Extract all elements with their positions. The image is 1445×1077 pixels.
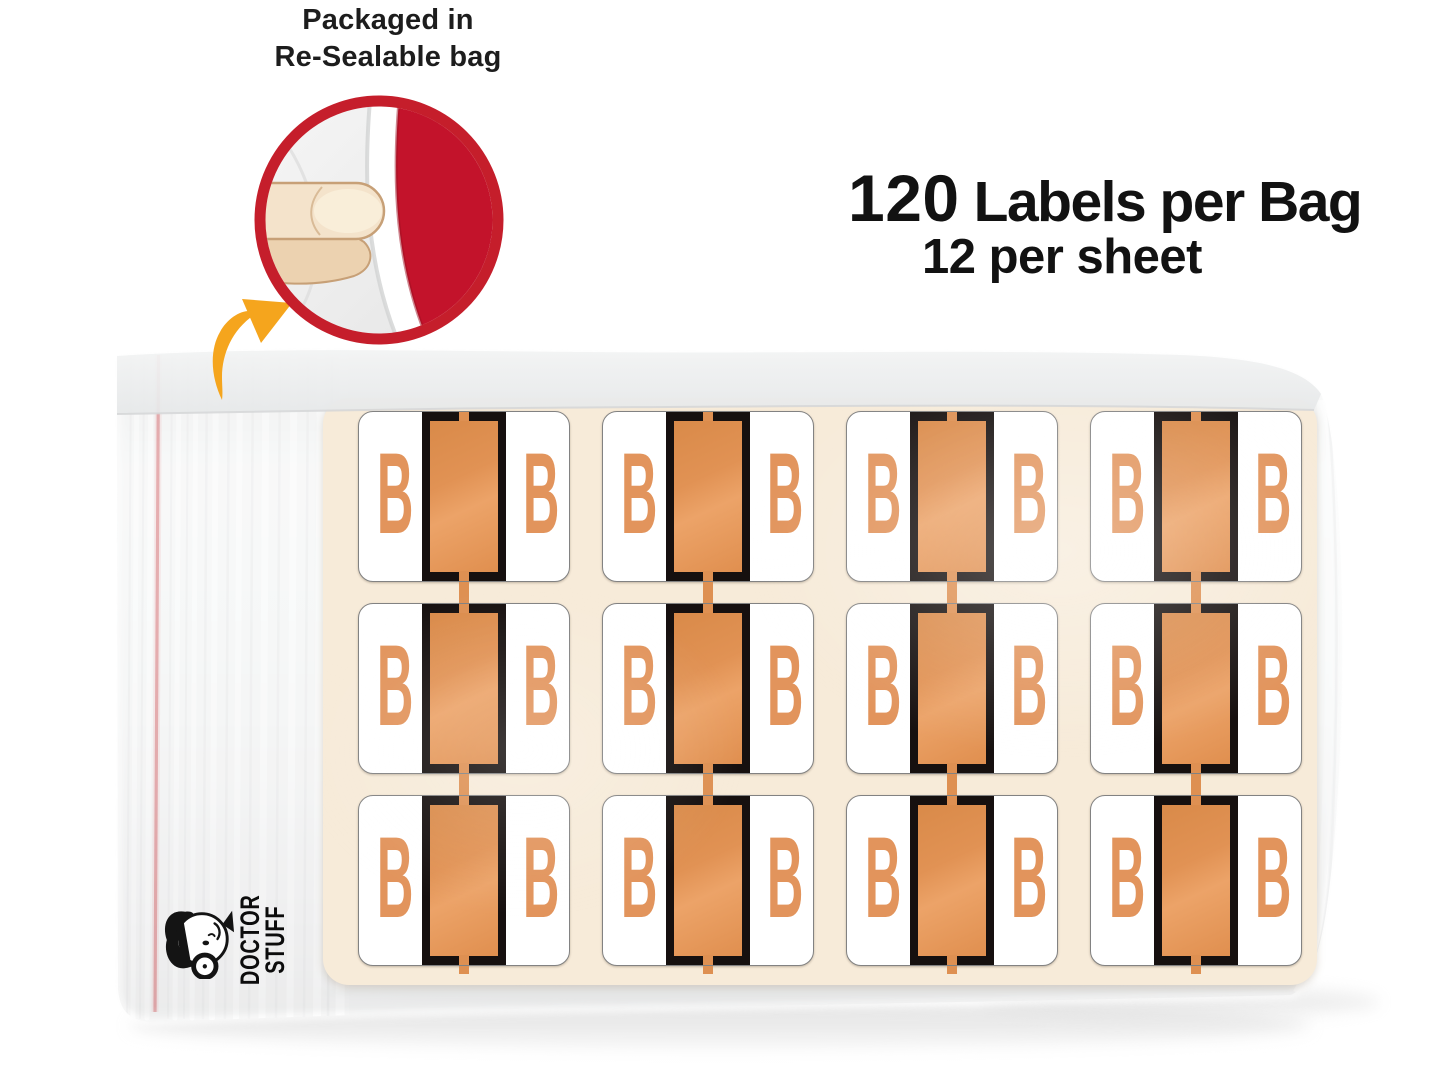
die-cut-tick [947,774,957,795]
bag-zip-red-line [155,355,159,1012]
color-code-label: B B [602,795,814,966]
label-letter-left: B [1109,629,1137,744]
packaged-note-line1: Packaged in [233,2,543,39]
doctor-face-icon [160,901,236,979]
color-code-label: B B [1090,411,1302,582]
label-letter-right: B [1255,821,1283,936]
label-letter-right: B [1011,437,1039,552]
die-cut-tick [703,966,713,974]
label-stripe [910,796,994,965]
die-cut-tick [947,966,957,974]
die-cut-tick [1191,774,1201,795]
label-stripe-core [674,421,742,572]
label-stripe-core [674,805,742,956]
label-stripe [666,604,750,773]
label-letter-right: B [523,821,551,936]
label-letter-left: B [865,437,893,552]
label-letter-right: B [1011,821,1039,936]
color-code-label: B B [1090,603,1302,774]
label-letter-left: B [621,821,649,936]
label-stripe [422,796,506,965]
color-code-label: B B [846,411,1058,582]
logo-text-stuff: STUFF [263,895,288,986]
label-stripe [1154,796,1238,965]
label-stripe-core [674,613,742,764]
label-stripe-core [1162,613,1230,764]
labels-per-bag-text: Labels per Bag [974,169,1362,235]
label-letter-left: B [865,629,893,744]
die-cut-tick [703,582,713,603]
product-image: B B B B B B B B B B B B B [0,0,1445,1077]
label-stripe-core [430,805,498,956]
color-code-label: B B [846,603,1058,774]
die-cut-tick [1191,966,1201,974]
label-stripe [1154,412,1238,581]
color-code-label: B B [358,603,570,774]
label-stripe-core [1162,421,1230,572]
color-code-label: B B [602,411,814,582]
packaged-note: Packaged in Re-Sealable bag [233,2,543,76]
bag-zip-red-line-glow [155,355,159,1012]
label-stripe [422,412,506,581]
label-letter-left: B [377,437,405,552]
resealable-bag-inset-icon [244,85,514,355]
die-cut-tick [459,966,469,974]
sheet-inner-shadow [320,982,1320,1004]
die-cut-tick [459,774,469,795]
label-stripe-core [1162,805,1230,956]
packaged-note-line2: Re-Sealable bag [233,39,543,76]
label-stripe [1154,604,1238,773]
labels-per-bag-number: 120 [848,160,960,236]
label-letter-right: B [523,629,551,744]
label-stripe-core [430,613,498,764]
label-letter-left: B [621,629,649,744]
color-code-label: B B [1090,795,1302,966]
label-stripe [666,796,750,965]
label-stripe [666,412,750,581]
label-letter-left: B [1109,821,1137,936]
label-letter-left: B [1109,437,1137,552]
per-sheet-text: 12 per sheet [922,229,1202,285]
label-letter-left: B [621,437,649,552]
color-code-label: B B [358,795,570,966]
bag-bottom-fade [0,1006,1445,1072]
label-stripe-core [430,421,498,572]
die-cut-tick [947,582,957,603]
label-letter-right: B [523,437,551,552]
label-sheet: B B B B B B B B B B B B B [323,398,1317,985]
color-code-label: B B [602,603,814,774]
label-stripe [910,412,994,581]
label-letter-right: B [1255,437,1283,552]
label-letter-left: B [865,821,893,936]
die-cut-tick [459,582,469,603]
label-stripe [422,604,506,773]
label-letter-right: B [767,437,795,552]
label-letter-right: B [1011,629,1039,744]
label-stripe [910,604,994,773]
label-letter-left: B [377,821,405,936]
label-letter-right: B [1255,629,1283,744]
color-code-label: B B [846,795,1058,966]
label-letter-right: B [767,629,795,744]
labels-per-bag-heading: 120 Labels per Bag [848,160,1361,236]
label-stripe-core [918,613,986,764]
label-stripe-core [918,805,986,956]
doctor-stuff-logo: DOCTOR STUFF [160,882,316,998]
color-code-label: B B [358,411,570,582]
label-stripe-core [918,421,986,572]
label-letter-right: B [767,821,795,936]
die-cut-tick [703,774,713,795]
label-letter-left: B [377,629,405,744]
die-cut-tick [1191,582,1201,603]
